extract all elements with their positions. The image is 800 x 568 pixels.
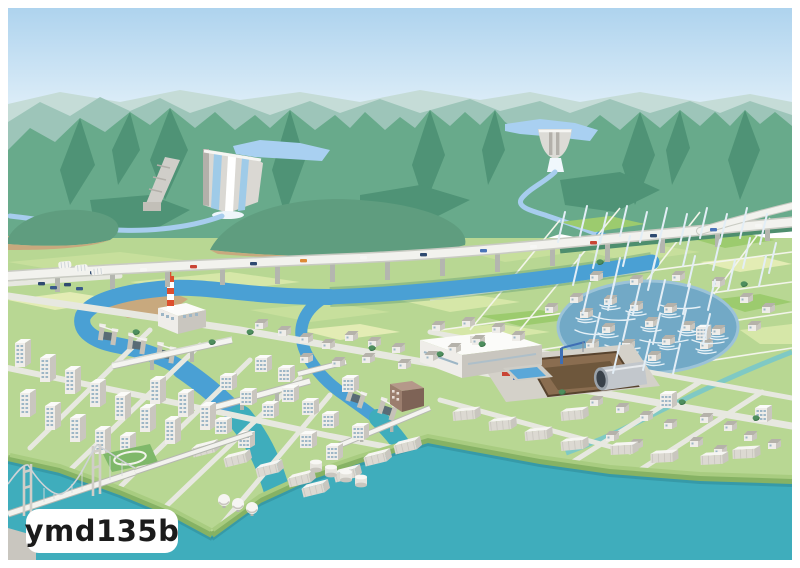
- bl: [40, 354, 56, 382]
- bl: [150, 376, 166, 404]
- bl: [165, 416, 181, 444]
- car: [76, 287, 83, 290]
- car: [64, 283, 71, 286]
- bm: [322, 411, 339, 428]
- bm: [215, 417, 232, 434]
- bm: [660, 391, 677, 408]
- car: [530, 245, 537, 248]
- bl: [200, 402, 216, 430]
- car: [300, 259, 307, 262]
- bm: [255, 355, 272, 372]
- tree: [437, 351, 444, 357]
- bm: [220, 373, 237, 390]
- car: [360, 256, 367, 259]
- car: [420, 253, 427, 256]
- image-id-badge: ymd135b: [26, 509, 178, 553]
- car: [50, 286, 57, 289]
- car: [140, 268, 147, 271]
- bm: [278, 365, 295, 382]
- bl: [65, 366, 81, 394]
- cyl: [325, 465, 337, 478]
- car: [710, 228, 717, 231]
- ghouse: [74, 264, 88, 272]
- car: [650, 234, 657, 237]
- car: [590, 241, 597, 244]
- bm: [302, 398, 319, 415]
- watershed-illustration: [0, 0, 800, 568]
- car: [38, 282, 45, 285]
- brown-building: [390, 381, 424, 412]
- tree: [479, 341, 486, 347]
- tree: [247, 329, 254, 335]
- bl: [140, 404, 156, 432]
- tree: [679, 399, 686, 405]
- tree: [753, 415, 760, 421]
- bl: [20, 389, 36, 417]
- cyl: [310, 460, 322, 473]
- bl: [70, 414, 86, 442]
- bl: [115, 392, 131, 420]
- bl: [178, 389, 194, 417]
- tree: [133, 329, 140, 335]
- tree: [559, 389, 566, 395]
- ghouse: [91, 267, 105, 275]
- car: [480, 249, 487, 252]
- tree: [741, 281, 748, 287]
- cyl: [340, 470, 352, 483]
- car: [755, 224, 762, 227]
- bl: [45, 402, 61, 430]
- bm: [240, 388, 257, 405]
- bm: [342, 375, 359, 392]
- cyl: [355, 475, 367, 488]
- illustration-frame: ymd135b: [0, 0, 800, 568]
- car: [250, 262, 257, 265]
- bm: [326, 443, 343, 460]
- bm: [352, 423, 369, 440]
- car: [190, 265, 197, 268]
- ghouse: [58, 261, 72, 269]
- tree: [597, 259, 604, 265]
- image-id-text: ymd135b: [25, 514, 180, 548]
- bm: [262, 401, 279, 418]
- bl: [15, 339, 31, 367]
- tree: [369, 345, 376, 351]
- bl: [90, 379, 106, 407]
- tree: [209, 339, 216, 345]
- bm: [300, 431, 317, 448]
- bm: [282, 385, 299, 402]
